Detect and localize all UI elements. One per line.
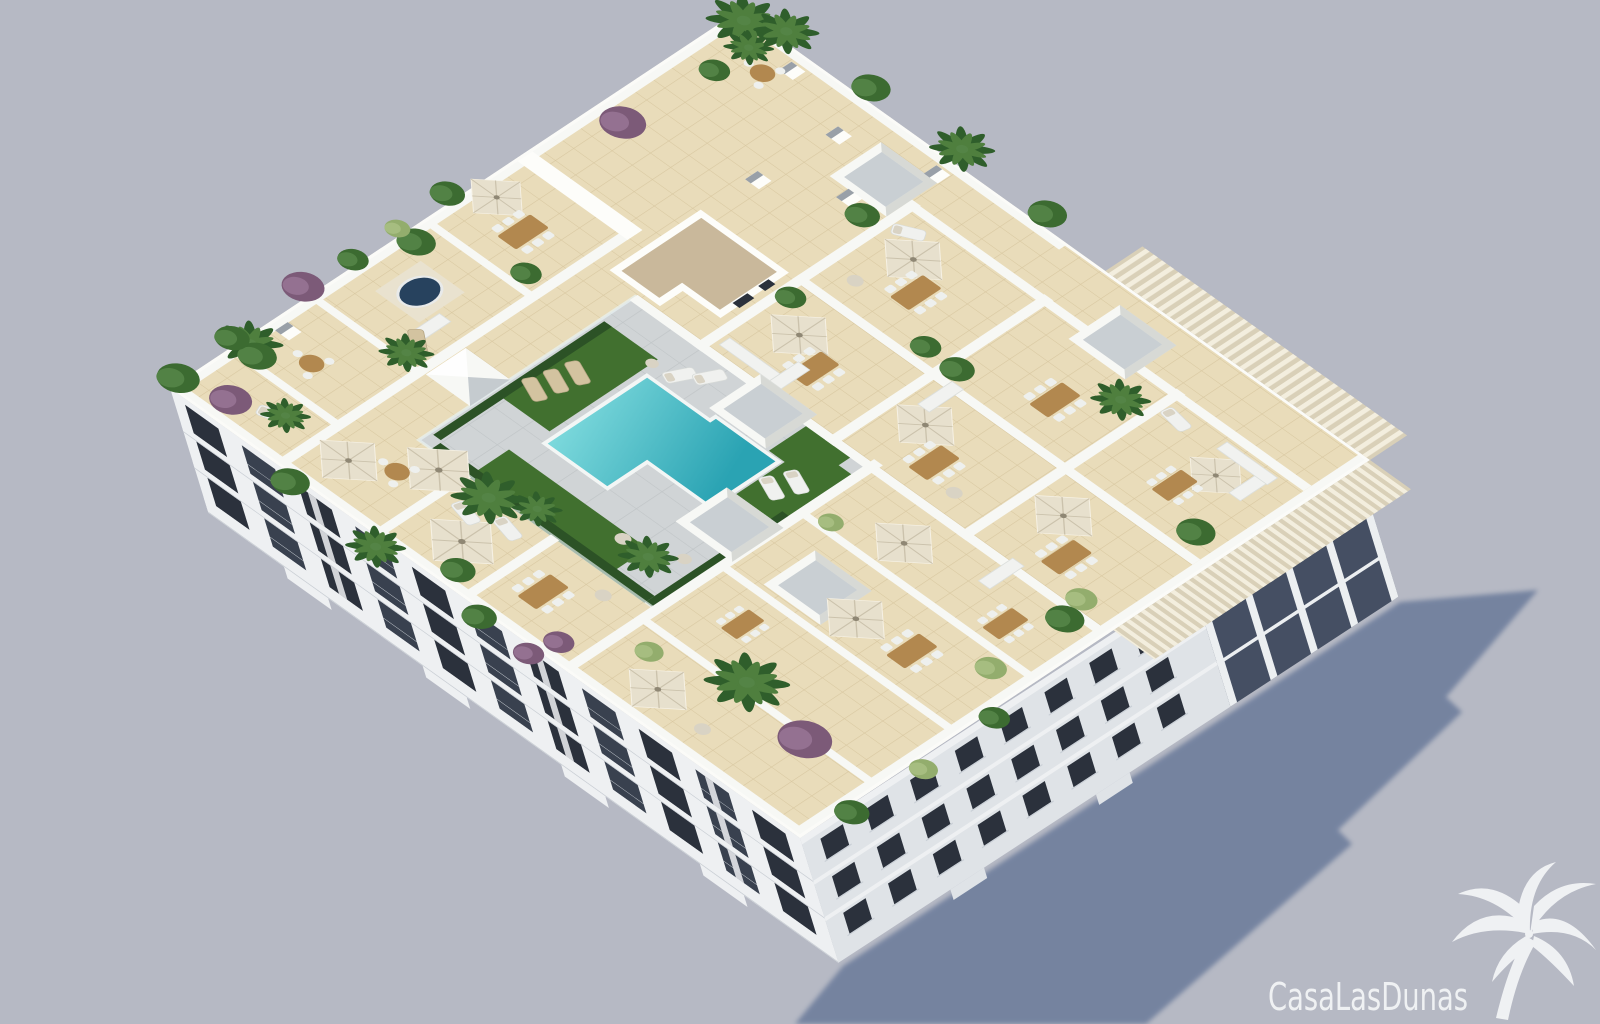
- aerial-render: CasaLasDunas: [0, 0, 1600, 1024]
- brand-wordmark: CasaLasDunas: [1268, 975, 1468, 1019]
- render-viewport: CasaLasDunas: [0, 0, 1600, 1024]
